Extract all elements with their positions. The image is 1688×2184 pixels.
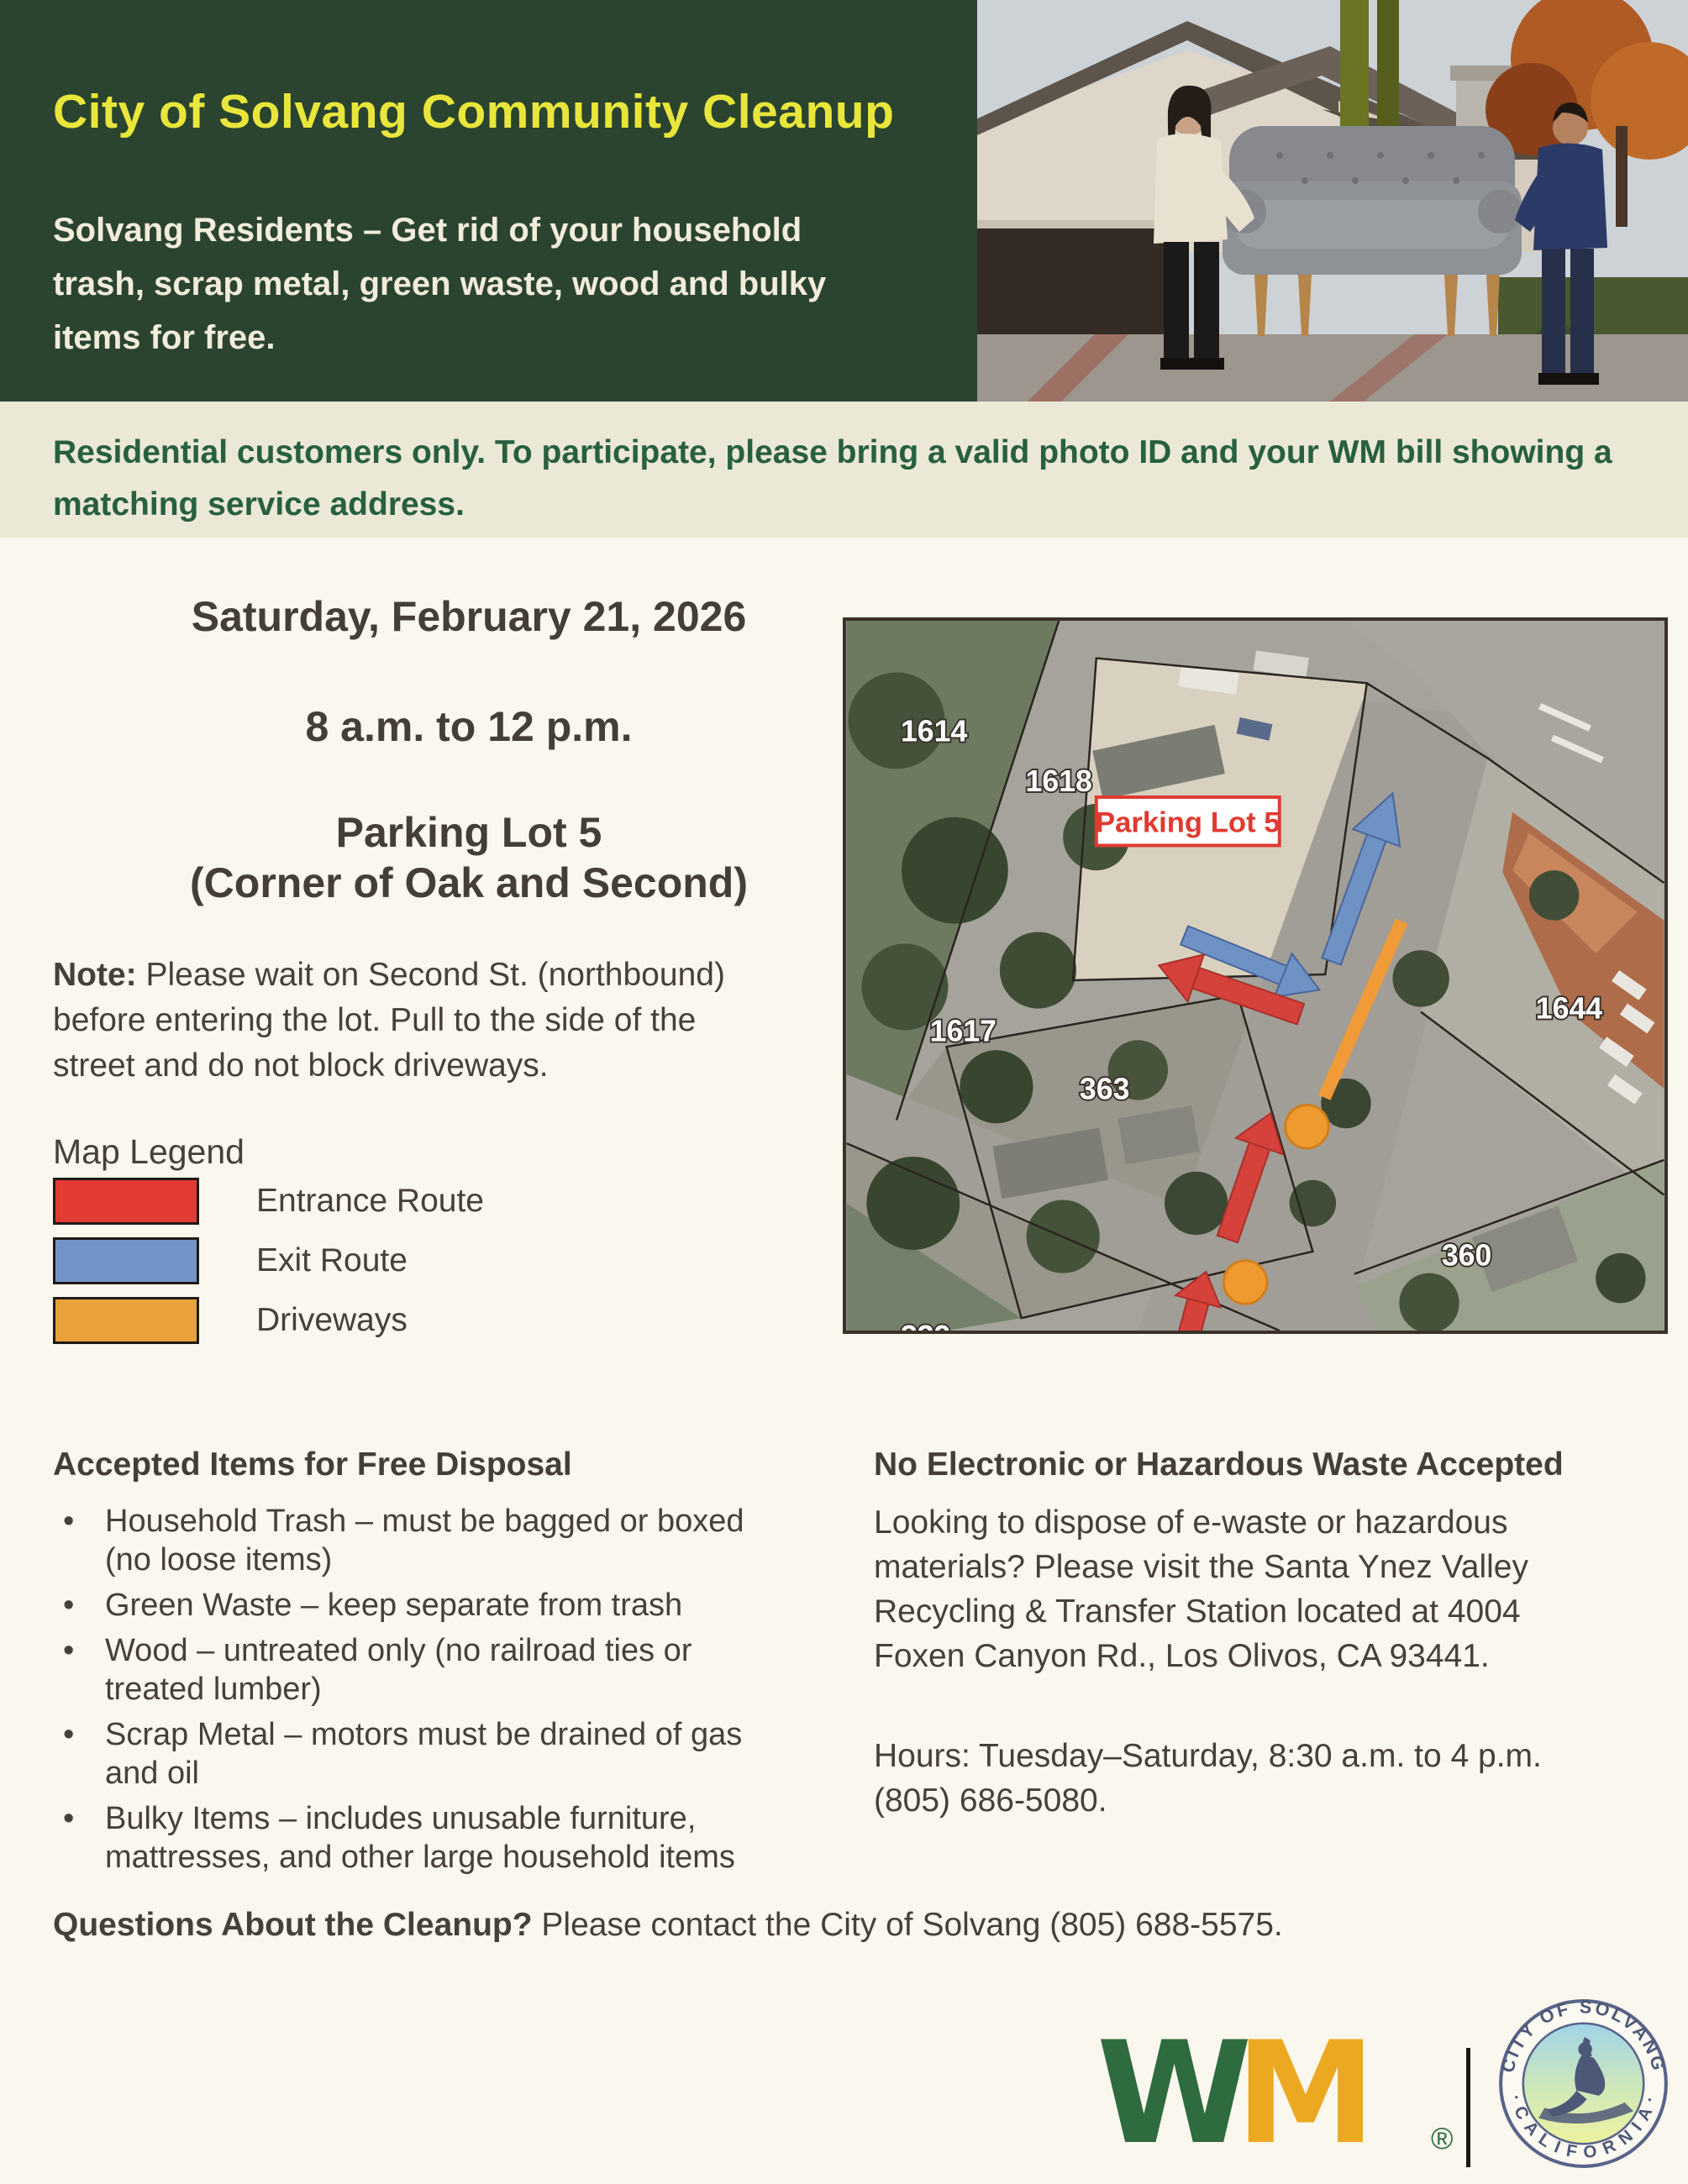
questions-label: Questions About the Cleanup? <box>53 1907 533 1943</box>
map-parcel-label-1618: 1618 <box>1026 764 1092 798</box>
list-item: Household Trash – must be bagged or boxe… <box>53 1502 834 1579</box>
driveway-dot <box>1223 1261 1267 1305</box>
svg-text:WM: WM <box>1096 2014 1365 2170</box>
legend-label: Driveways <box>256 1302 408 1339</box>
notice-text: Residential customers only. To participa… <box>0 402 1688 532</box>
wm-letter-w: W <box>1096 2014 1249 2170</box>
map-parcel-label-363: 363 <box>1080 1073 1130 1106</box>
entrance-route-swatch <box>53 1178 199 1225</box>
page-title: City of Solvang Community Cleanup <box>53 84 894 139</box>
list-item: Green Waste – keep separate from trash <box>53 1586 834 1625</box>
list-item: Scrap Metal – motors must be drained of … <box>53 1715 834 1793</box>
solvang-seal-svg: CITY OF SOLVANG · C A L I F O R N I A · <box>1497 1998 1670 2170</box>
header-photo <box>977 0 1688 402</box>
legend-item-driveways: Driveways <box>53 1297 484 1344</box>
map-legend: Entrance Route Exit Route Driveways <box>53 1178 484 1357</box>
accepted-items-title: Accepted Items for Free Disposal <box>53 1446 834 1483</box>
event-time: 8 a.m. to 12 p.m. <box>53 702 885 751</box>
legend-label: Entrance Route <box>256 1183 484 1220</box>
hazardous-info: Looking to dispose of e-waste or hazardo… <box>874 1500 1664 1678</box>
aerial-map: 1614 1618 1617 363 1644 360 339 Parking … <box>843 617 1668 1334</box>
page-subtitle: Solvang Residents – Get rid of your hous… <box>53 203 944 365</box>
svg-text:Parking Lot 5: Parking Lot 5 <box>1096 807 1280 839</box>
wm-letter-m: M <box>1235 2014 1364 2170</box>
entry-note: Note: Please wait on Second St. (northbo… <box>53 953 818 1088</box>
hazardous-waste-section: No Electronic or Hazardous Waste Accepte… <box>874 1446 1664 1823</box>
accepted-items-list: Household Trash – must be bagged or boxe… <box>53 1502 834 1877</box>
accepted-items-section: Accepted Items for Free Disposal Househo… <box>53 1446 834 1883</box>
note-label: Note: <box>53 957 137 993</box>
map-parcel-label-1644: 1644 <box>1536 992 1602 1026</box>
notice-band: Residential customers only. To participa… <box>0 402 1688 538</box>
legend-item-exit: Exit Route <box>53 1237 484 1284</box>
logo-divider <box>1466 2048 1470 2167</box>
solvang-seal: CITY OF SOLVANG · C A L I F O R N I A · <box>1497 1998 1670 2170</box>
aerial-map-illustration: 1614 1618 1617 363 1644 360 339 Parking … <box>846 621 1664 1331</box>
wm-logo: WM ® <box>1096 2014 1458 2170</box>
list-item: Bulky Items – includes unusable furnitur… <box>53 1799 834 1877</box>
map-parcel-label-360: 360 <box>1442 1239 1492 1273</box>
header-band: City of Solvang Community Cleanup Solvan… <box>0 0 1688 402</box>
list-item: Wood – untreated only (no railroad ties … <box>53 1631 834 1709</box>
hours-info: Hours: Tuesday–Saturday, 8:30 a.m. to 4 … <box>874 1734 1664 1823</box>
event-location-detail: (Corner of Oak and Second) <box>53 858 885 907</box>
exit-route-swatch <box>53 1237 199 1284</box>
couch-carry-photo-illustration <box>977 0 1688 402</box>
note-text: Please wait on Second St. (northbound) b… <box>53 957 725 1084</box>
questions-line: Questions About the Cleanup? Please cont… <box>53 1907 1616 1944</box>
map-parcel-label-339: 339 <box>901 1320 951 1331</box>
event-date: Saturday, February 21, 2026 <box>53 592 885 641</box>
parking-lot-5-label: Parking Lot 5 <box>1096 797 1280 845</box>
legend-label: Exit Route <box>256 1242 408 1279</box>
flyer-page: City of Solvang Community Cleanup Solvan… <box>0 0 1688 2184</box>
map-parcel-label-1614: 1614 <box>901 715 967 748</box>
wm-logo-svg: WM ® <box>1096 2014 1458 2170</box>
questions-text: Please contact the City of Solvang (805)… <box>541 1907 1282 1943</box>
driveway-dot <box>1286 1105 1329 1149</box>
map-legend-title: Map Legend <box>53 1132 245 1172</box>
map-parcel-label-1617: 1617 <box>930 1014 996 1047</box>
driveways-swatch <box>53 1297 199 1344</box>
legend-item-entrance: Entrance Route <box>53 1178 484 1225</box>
wm-registered-mark: ® <box>1431 2121 1454 2155</box>
no-hazardous-title: No Electronic or Hazardous Waste Accepte… <box>874 1446 1664 1483</box>
event-location: Parking Lot 5 <box>53 808 885 857</box>
